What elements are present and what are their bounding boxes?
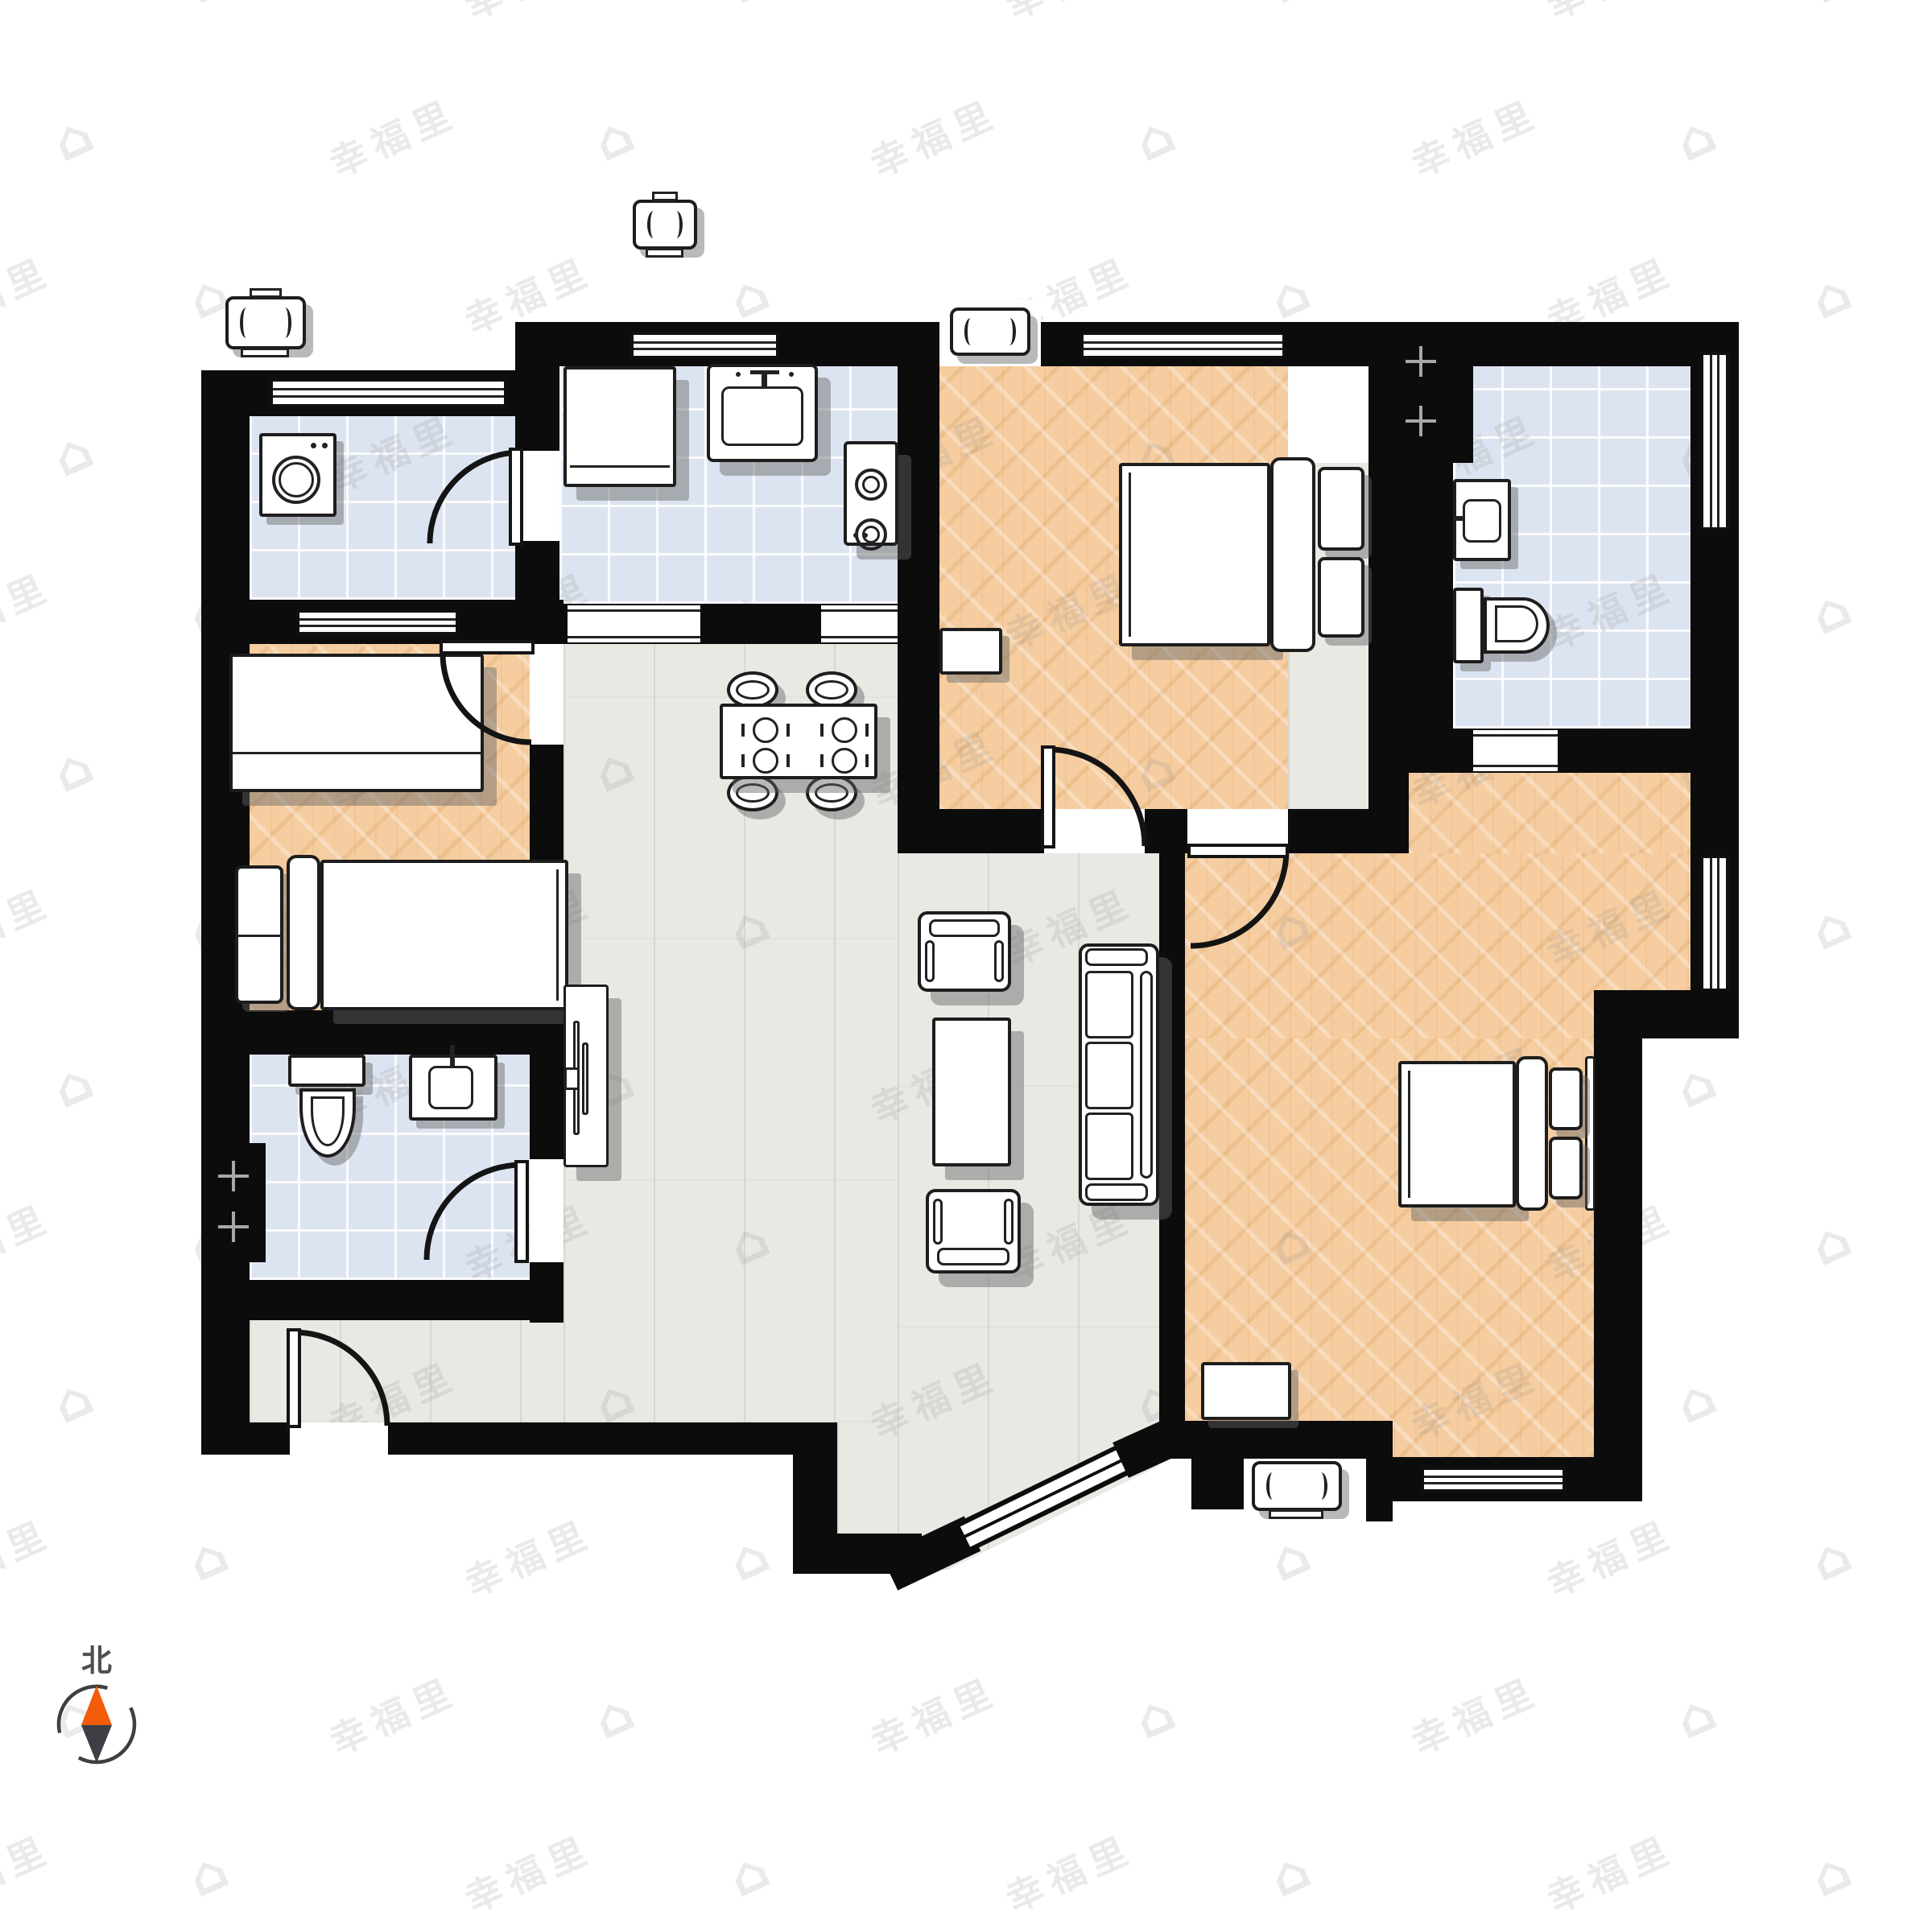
- ac-bracket: [670, 211, 683, 239]
- sofa-back: [1140, 971, 1153, 1179]
- armchair-back: [929, 919, 1000, 937]
- ac-unit-laundry: [225, 296, 306, 349]
- bed-foot-line: [1408, 1071, 1410, 1198]
- bedroom2-bed-pillow: [1270, 457, 1315, 652]
- bedroom1-wardrobe: [229, 654, 484, 792]
- ac-unit-master: [1252, 1461, 1342, 1511]
- plate: [753, 717, 778, 743]
- plate: [753, 748, 778, 774]
- tv-box: [564, 1067, 580, 1090]
- armchair-top: [918, 911, 1011, 992]
- ac-base: [646, 248, 684, 258]
- washer-drum-inner: [279, 462, 314, 497]
- plate: [832, 748, 857, 774]
- master-bed: [1398, 1061, 1516, 1207]
- stove-dot: [863, 533, 868, 538]
- ac-bracket: [279, 308, 291, 337]
- bedroom1-nightstand: [235, 865, 283, 1004]
- ac-bracket: [1003, 318, 1016, 345]
- cutlery: [820, 754, 824, 767]
- sink-dot: [736, 372, 741, 377]
- nightstand-divider: [238, 935, 280, 937]
- wardrobe-shelf-line: [233, 752, 481, 754]
- bedroom2-nightstand-top: [1318, 467, 1364, 551]
- ac-tab: [652, 192, 678, 201]
- armchair-arm: [933, 1199, 943, 1245]
- ac-bracket: [240, 308, 253, 337]
- compass-north-label: 北: [56, 1636, 137, 1671]
- bathroom1-toilet-tank: [1453, 588, 1484, 663]
- chair-inner: [736, 783, 770, 803]
- cutlery: [786, 754, 790, 767]
- sofa-cushion: [1085, 1042, 1133, 1109]
- chair-inner: [815, 783, 848, 803]
- bed-foot-line: [556, 869, 559, 1001]
- ac-tab: [250, 288, 282, 298]
- coffee-table: [932, 1018, 1011, 1166]
- cutlery: [786, 724, 790, 737]
- stove-two-burner: [844, 441, 898, 546]
- bedroom2-nightstand-bottom: [1318, 557, 1364, 638]
- kitchen-sink: [707, 364, 818, 462]
- sofa-cushion: [1085, 1113, 1133, 1180]
- armchair-arm: [1004, 1199, 1013, 1245]
- bathroom2-toilet-tank: [288, 1055, 365, 1087]
- ac-bracket: [647, 211, 660, 239]
- faucet: [450, 1045, 455, 1067]
- master-bed-headboard: [1585, 1056, 1596, 1211]
- dining-table: [720, 704, 877, 779]
- plate: [832, 717, 857, 743]
- sofa-arm: [1085, 1183, 1148, 1201]
- washing-machine: [259, 433, 336, 517]
- stove-dot: [853, 533, 858, 538]
- sofa-cushion: [1085, 971, 1133, 1038]
- bedroom1-bed: [320, 860, 568, 1010]
- bathroom2-sink-basin: [428, 1066, 473, 1109]
- kitchen-counter: [563, 366, 676, 487]
- bed-foot-line: [1129, 473, 1131, 637]
- washer-dot: [322, 443, 328, 448]
- armchair-arm: [925, 940, 935, 982]
- master-nightstand-top: [1549, 1067, 1583, 1130]
- toilet-bowl-inner: [311, 1096, 345, 1146]
- ac-bracket: [1315, 1472, 1327, 1501]
- cutlery: [820, 724, 824, 737]
- bedroom2-bed: [1119, 463, 1270, 646]
- sofa-three-seat: [1079, 943, 1159, 1206]
- bathroom2-toilet-bowl: [299, 1088, 356, 1158]
- sink-dot: [789, 372, 794, 377]
- chair-inner: [815, 680, 848, 700]
- furniture-layer: [0, 0, 1932, 1932]
- ac-unit-top: [633, 200, 697, 250]
- floor-plan-canvas: 幸福里⌂幸福里⌂幸福里⌂幸福里⌂⌂幸福里⌂幸福里⌂幸福里⌂幸福里幸福里⌂幸福里⌂…: [0, 0, 1932, 1932]
- ac-unit-bedroom2: [950, 308, 1030, 356]
- sink-basin: [721, 386, 803, 446]
- ac-bracket: [1266, 1472, 1279, 1501]
- toilet-bowl-inner: [1495, 605, 1538, 642]
- chair-inner: [736, 680, 770, 700]
- washer-dot: [311, 443, 316, 448]
- master-nightstand-bottom: [1549, 1137, 1583, 1199]
- faucet: [762, 372, 767, 388]
- master-bed-pillow: [1516, 1056, 1548, 1211]
- bathroom1-sink-basin: [1463, 499, 1501, 543]
- sofa-arm: [1085, 948, 1148, 966]
- ac-bracket: [964, 318, 977, 345]
- cutlery: [865, 724, 869, 737]
- master-dresser: [1201, 1362, 1291, 1420]
- ac-base: [241, 348, 290, 357]
- tv-soundbar: [582, 1042, 588, 1115]
- cutlery: [865, 754, 869, 767]
- burner-inner: [862, 476, 880, 493]
- bathroom1-toilet-bowl: [1484, 597, 1550, 654]
- armchair-arm: [994, 940, 1004, 982]
- dining-chair: [727, 774, 778, 811]
- cutlery: [741, 724, 745, 737]
- armchair-bottom: [926, 1189, 1021, 1274]
- ac-base: [1269, 1509, 1324, 1519]
- cutlery: [741, 754, 745, 767]
- armchair-back: [937, 1248, 1009, 1265]
- bedroom2-dresser: [939, 628, 1002, 675]
- dining-chair: [806, 774, 857, 811]
- bedroom1-bed-pillow: [287, 855, 320, 1010]
- counter-edge: [570, 465, 670, 468]
